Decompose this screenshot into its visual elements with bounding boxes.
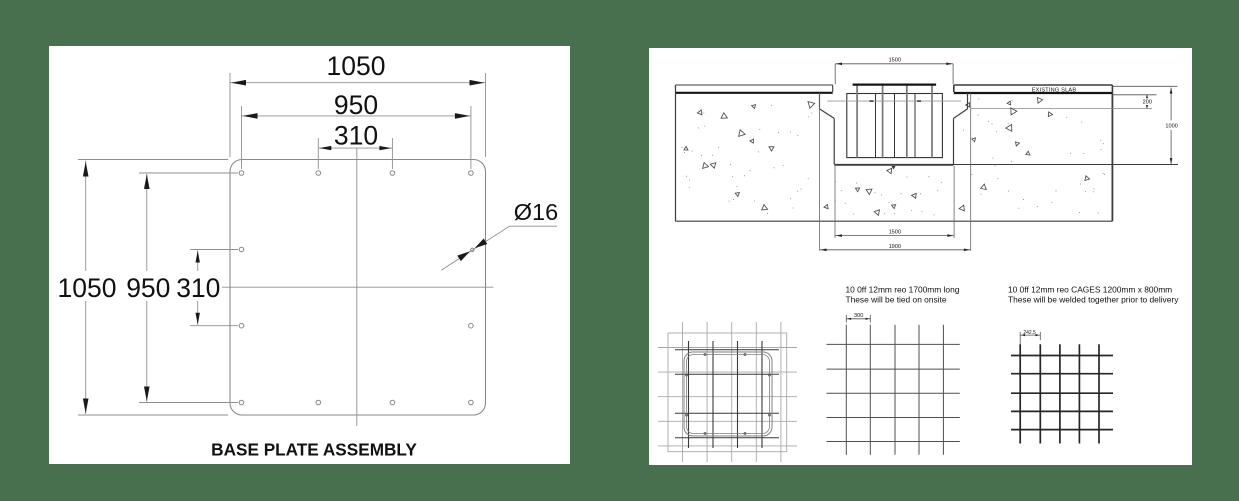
svg-text:310: 310	[334, 120, 378, 150]
svg-text:EXISTING SLAB: EXISTING SLAB	[1032, 87, 1077, 93]
svg-text:10 0ff 12mm reo 1700mm long: 10 0ff 12mm reo 1700mm long	[846, 285, 960, 295]
svg-text:1000: 1000	[1165, 124, 1177, 130]
svg-text:BASE PLATE ASSEMBLY: BASE PLATE ASSEMBLY	[211, 440, 417, 460]
svg-text:1500: 1500	[889, 230, 901, 236]
svg-text:950: 950	[334, 90, 378, 120]
svg-text:These will be tied on onsite: These will be tied on onsite	[846, 294, 947, 304]
svg-text:1050: 1050	[58, 273, 117, 303]
svg-text:1900: 1900	[889, 244, 901, 250]
svg-text:10 0ff 12mm reo CAGES 1200mm x: 10 0ff 12mm reo CAGES 1200mm x 800mm	[1008, 285, 1172, 295]
svg-text:1050: 1050	[327, 51, 386, 81]
svg-text:These will be welded together: These will be welded together prior to d…	[1008, 294, 1179, 304]
svg-text:1500: 1500	[889, 58, 901, 64]
svg-text:200: 200	[1143, 100, 1152, 106]
svg-text:310: 310	[176, 273, 220, 303]
svg-text:Ø16: Ø16	[514, 199, 558, 225]
svg-text:950: 950	[126, 273, 170, 303]
svg-text:300: 300	[854, 313, 863, 319]
